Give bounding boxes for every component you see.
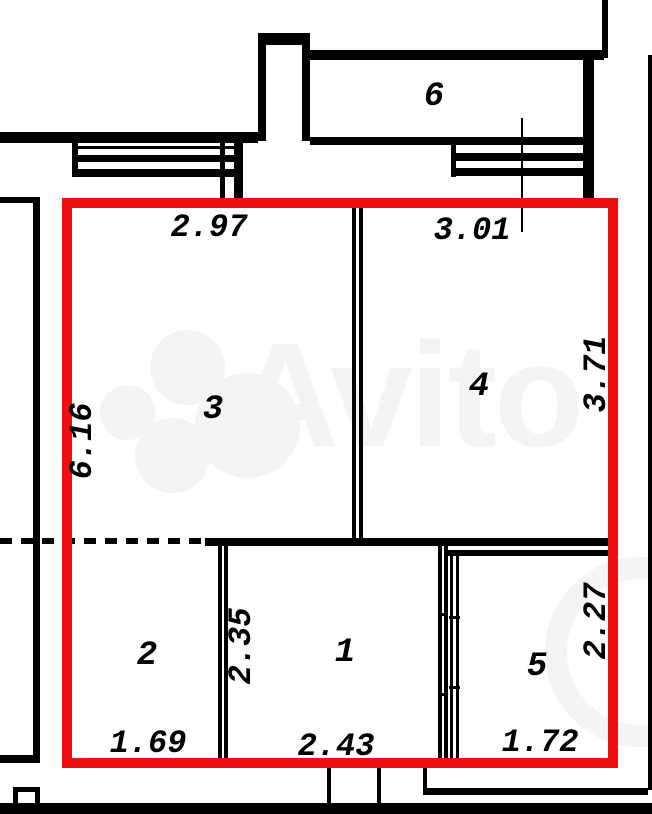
bottom-door-tick (180, 803, 184, 814)
window-left-line (74, 155, 241, 162)
dimension-label: 2.27 (581, 583, 613, 660)
shaft-left-wall (258, 33, 266, 141)
wall-below-vertical (327, 768, 331, 805)
room-number-2: 2 (137, 639, 157, 673)
window-left-pier (234, 143, 243, 200)
wall-left-neighbor-bottom (0, 755, 40, 763)
wall-left-neighbor-vertical (33, 197, 40, 763)
window-left-line (74, 169, 241, 177)
room-number-4: 4 (469, 370, 489, 404)
dimension-label: 2.43 (298, 731, 375, 763)
dimension-label: 3.01 (434, 215, 511, 247)
window-left-line (74, 146, 241, 149)
wall-right-outer (648, 55, 652, 790)
dimension-label: 2.35 (226, 608, 258, 685)
bottom-notch (13, 787, 40, 792)
dimension-label: 3.71 (581, 336, 613, 413)
balcony-top-wall (302, 50, 604, 60)
dimension-label: 1.72 (502, 727, 579, 759)
dimension-label: 1.69 (110, 728, 187, 760)
wall-bottom-outer (0, 803, 652, 814)
bottom-door-tick (200, 803, 204, 814)
balcony-right-wall (583, 55, 594, 200)
room-number-1: 1 (335, 636, 355, 670)
room-number-6: 6 (424, 80, 444, 114)
balcony-bottom-wall (310, 137, 590, 145)
dimension-label: 6.16 (67, 403, 99, 480)
floor-plan: Avito (0, 0, 652, 814)
room-number-5: 5 (527, 650, 547, 684)
wall-bottom-step (423, 788, 648, 795)
room-number-3: 3 (203, 393, 223, 427)
wall-top-left (0, 132, 258, 143)
window-left-pier (220, 143, 225, 200)
dimension-label: 2.97 (171, 212, 248, 244)
wall-top-right-stub (602, 0, 608, 58)
